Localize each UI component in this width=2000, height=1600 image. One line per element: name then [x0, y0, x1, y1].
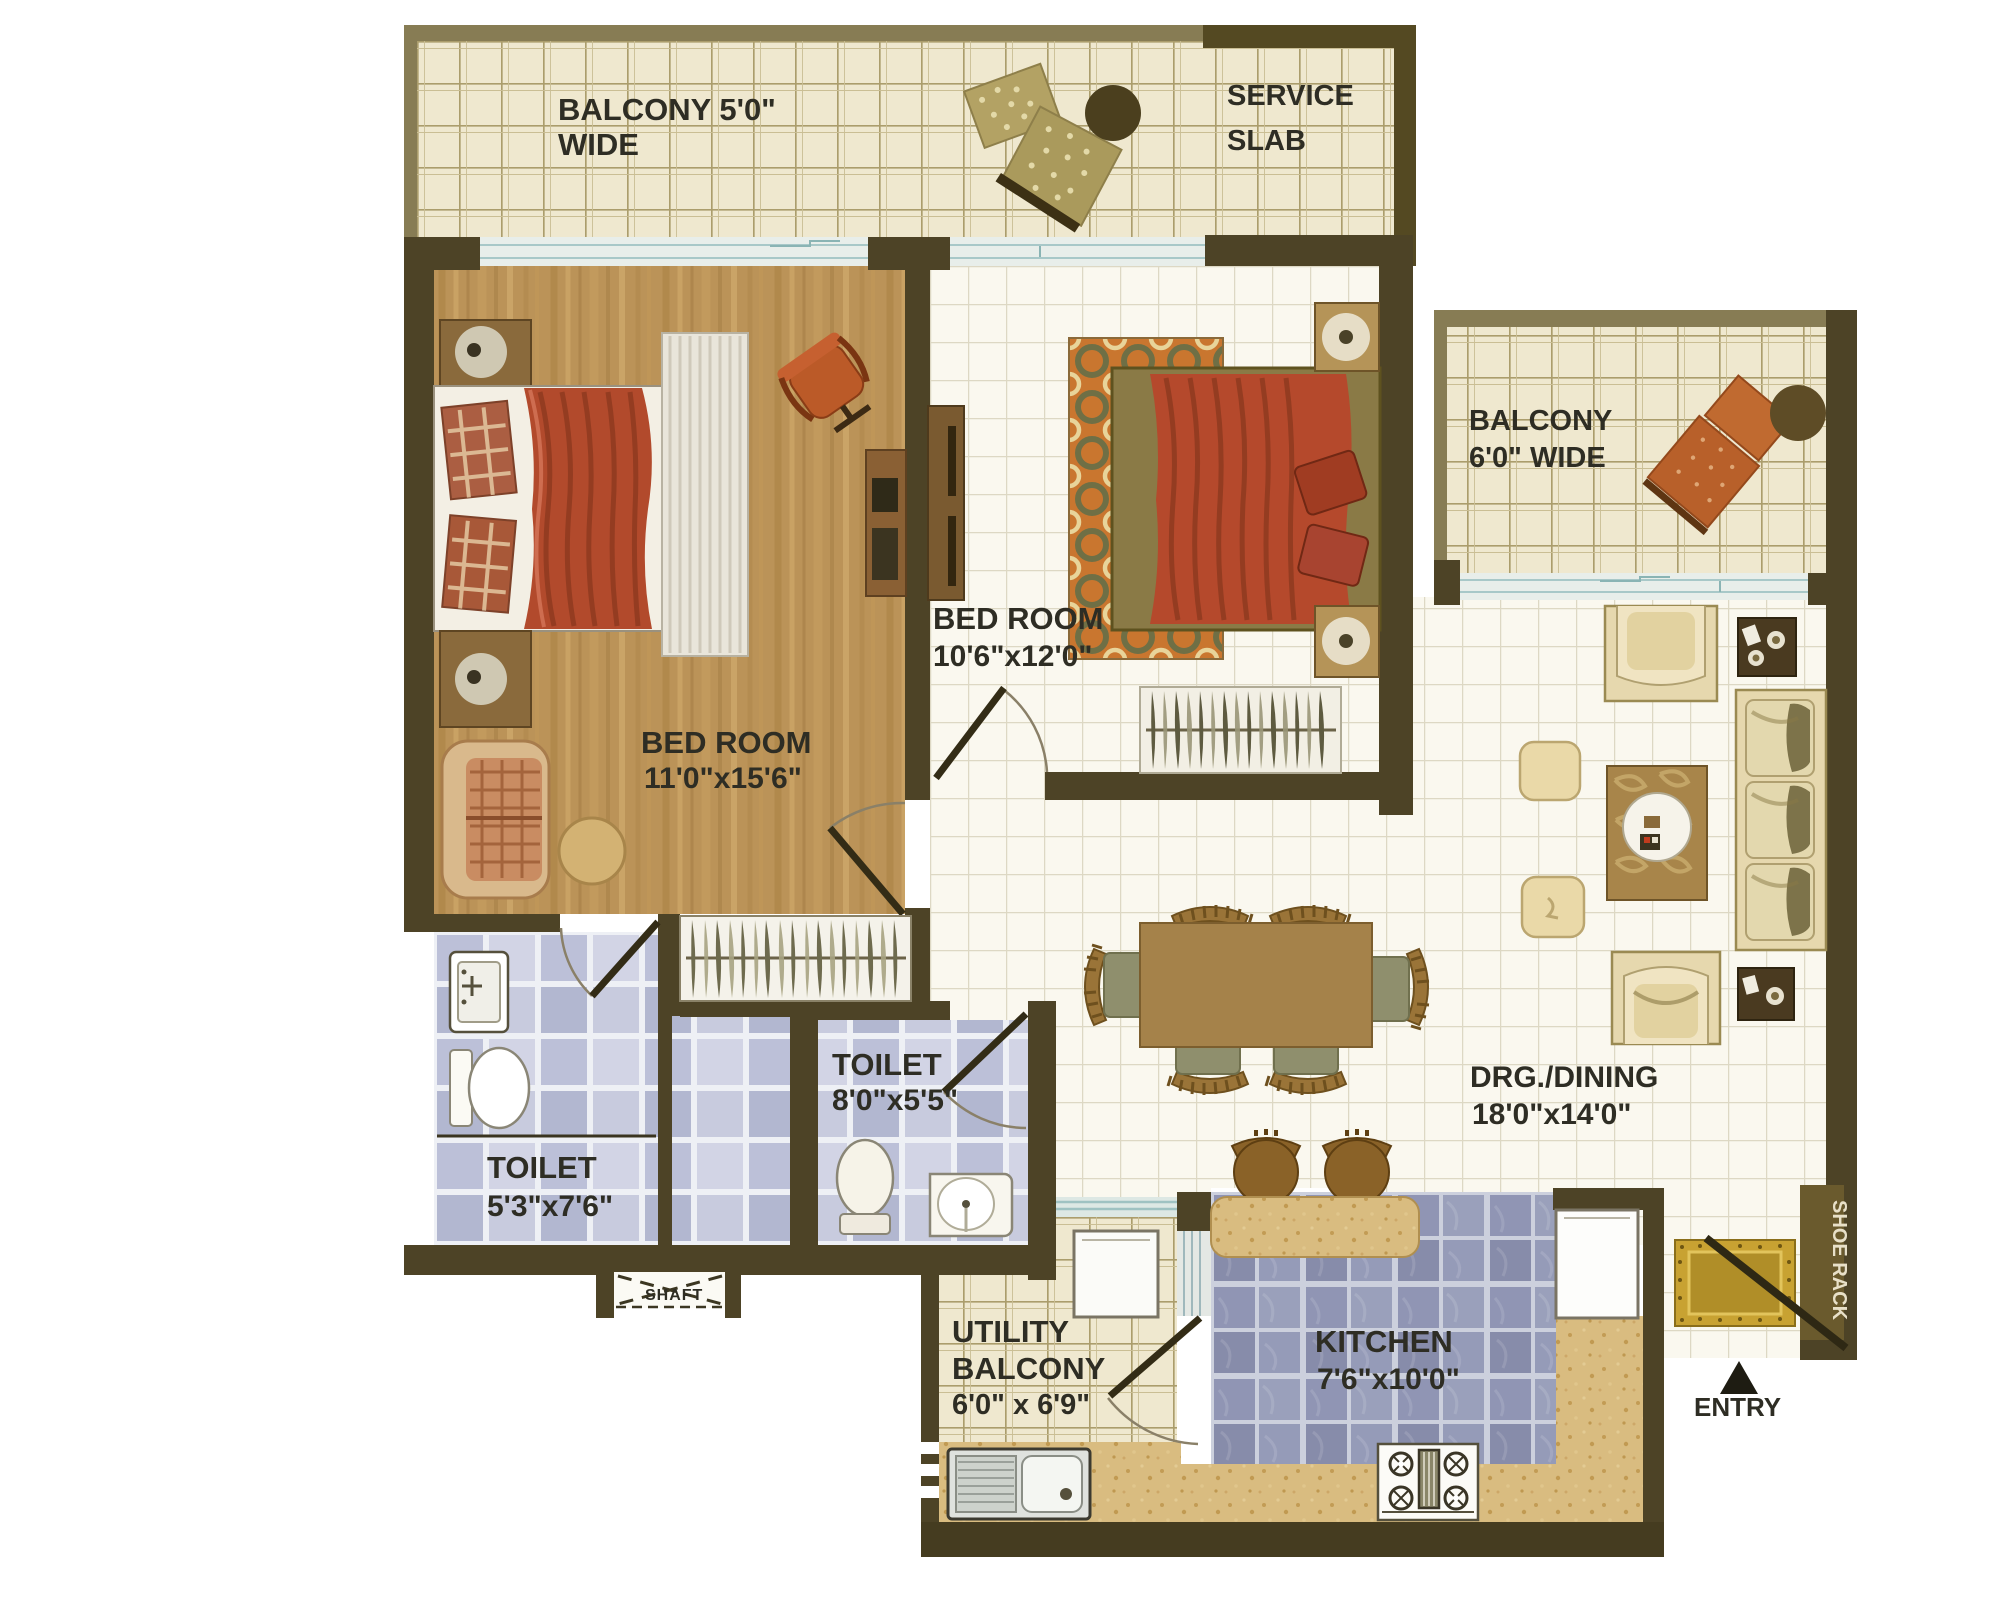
- svg-text:BED ROOM: BED ROOM: [933, 601, 1104, 636]
- svg-text:SERVICE: SERVICE: [1227, 80, 1354, 112]
- svg-text:UTILITY: UTILITY: [952, 1314, 1069, 1349]
- svg-text:5'3"x7'6": 5'3"x7'6": [487, 1190, 613, 1223]
- svg-text:WIDE: WIDE: [558, 127, 639, 162]
- svg-text:18'0"x14'0": 18'0"x14'0": [1472, 1098, 1632, 1131]
- svg-text:BALCONY: BALCONY: [952, 1351, 1106, 1386]
- svg-text:BALCONY 5'0": BALCONY 5'0": [558, 92, 776, 127]
- svg-text:BED ROOM: BED ROOM: [641, 725, 812, 760]
- svg-text:SHOE RACK: SHOE RACK: [1828, 1200, 1850, 1321]
- svg-text:8'0"x5'5": 8'0"x5'5": [832, 1084, 958, 1117]
- svg-text:7'6"x10'0": 7'6"x10'0": [1317, 1363, 1460, 1396]
- svg-text:6'0" x 6'9": 6'0" x 6'9": [952, 1389, 1090, 1421]
- svg-text:SHAFT: SHAFT: [645, 1287, 703, 1304]
- svg-text:10'6"x12'0": 10'6"x12'0": [933, 640, 1093, 673]
- svg-text:BALCONY: BALCONY: [1469, 405, 1612, 437]
- svg-text:11'0"x15'6": 11'0"x15'6": [644, 762, 802, 795]
- svg-text:KITCHEN: KITCHEN: [1315, 1324, 1453, 1359]
- svg-text:TOILET: TOILET: [487, 1150, 597, 1185]
- svg-text:6'0" WIDE: 6'0" WIDE: [1469, 442, 1606, 474]
- svg-text:TOILET: TOILET: [832, 1047, 942, 1082]
- svg-text:DRG./DINING: DRG./DINING: [1470, 1061, 1658, 1094]
- svg-text:ENTRY: ENTRY: [1694, 1392, 1781, 1422]
- svg-text:SLAB: SLAB: [1227, 125, 1306, 157]
